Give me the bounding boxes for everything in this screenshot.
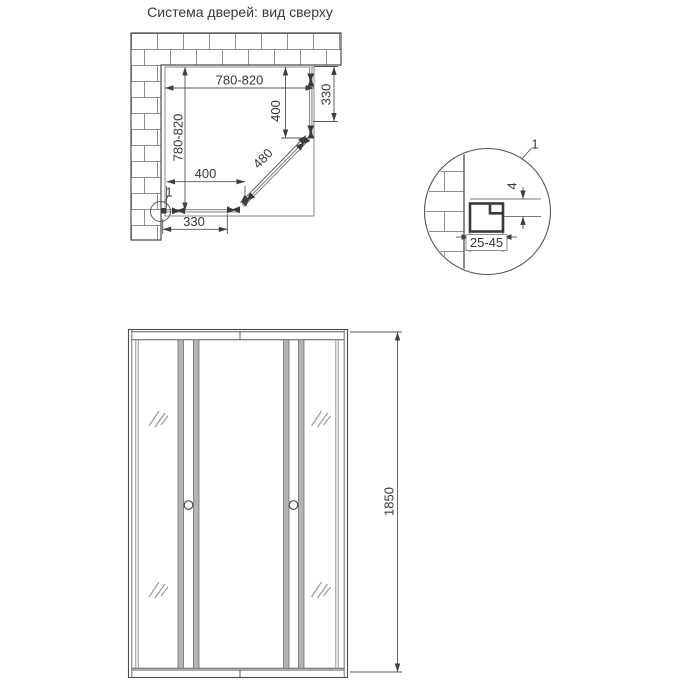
dim-front-panel: 400 [167,166,246,208]
dim-depth-label: 780-820 [171,114,186,162]
front-view: 1850 [129,330,403,678]
drawing-page: Система дверей: вид сверху [0,0,680,680]
diagonal-door-panel [241,136,310,206]
dim-front-fixed: 330 [163,214,228,234]
dim-glass-step-label: 4 [505,182,520,189]
stile [194,340,200,669]
dim-profile-range-label: 25-45 [470,235,503,250]
stile [178,340,184,669]
detail-view: 4 25-45 1 [424,137,551,277]
glass-clamp [307,126,314,139]
dim-side-panel: 400 [268,67,311,138]
wall-bracket [162,208,167,214]
dim-side-panel-label: 400 [268,100,283,122]
dim-front-fixed-label: 330 [183,214,205,229]
dim-height: 1850 [350,332,402,672]
glass-clamp [307,74,314,87]
dim-diagonal-door: 480 [239,134,308,205]
dim-diagonal-door-label: 480 [250,145,276,171]
stile [299,340,305,669]
technical-drawing: Система дверей: вид сверху [0,0,680,680]
door-handle-left [184,501,193,510]
dim-front-panel-label: 400 [195,166,217,181]
side-glass-panel [307,67,314,139]
top-view-plan: 780-820 780-820 400 330 [131,33,341,240]
detail-marker-label: 1 [165,185,172,200]
dim-height-label: 1850 [382,487,397,516]
stile [284,340,290,669]
enclosure-outline [165,67,314,216]
detail-callout-label: 1 [531,137,538,152]
dim-width-label: 780-820 [216,73,264,88]
outer-frame [129,330,348,678]
door-handle-right [289,501,298,510]
detail-callout-leader [522,148,532,159]
dim-side-fixed-label: 330 [319,84,334,106]
page-title: Система дверей: вид сверху [147,4,333,20]
dim-side-fixed: 330 [313,67,338,122]
